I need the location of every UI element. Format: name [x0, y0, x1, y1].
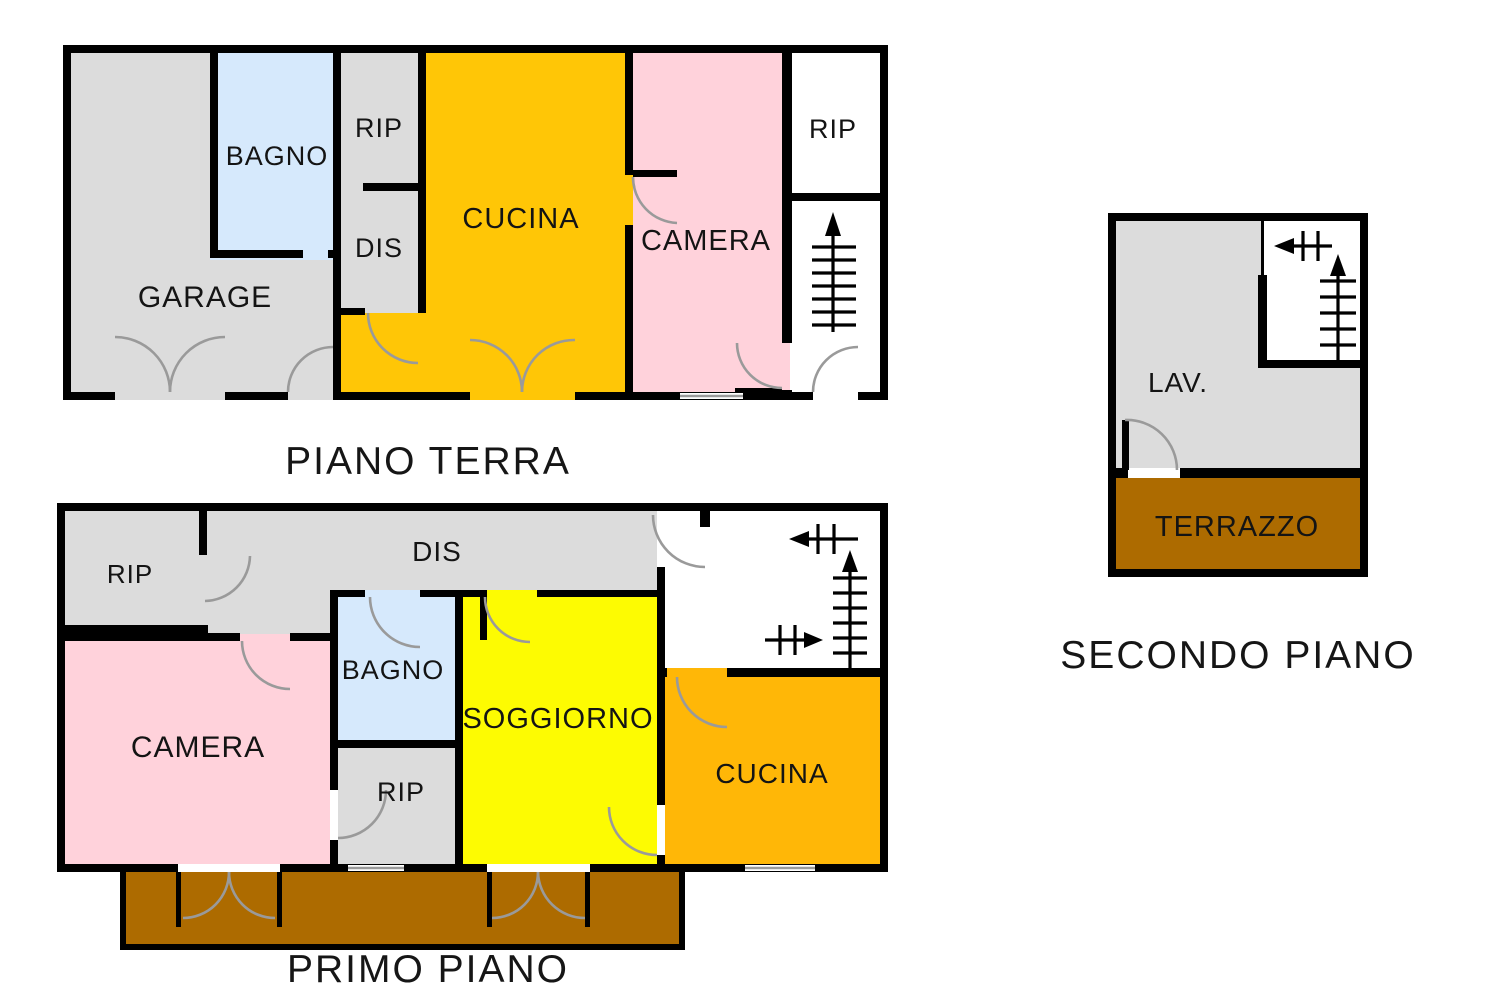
label-bagno-ground: BAGNO	[226, 141, 329, 171]
floor-title-second: SECONDO PIANO	[1060, 634, 1415, 677]
floor-title-ground: PIANO TERRA	[285, 440, 571, 483]
window-dis-first	[348, 865, 404, 871]
label-garage: GARAGE	[138, 281, 272, 314]
label-lav: LAV.	[1148, 367, 1208, 398]
label-terrazzo: TERRAZZO	[1155, 511, 1319, 543]
room-stairwell-second	[1261, 221, 1360, 362]
balcony-first	[120, 872, 685, 950]
label-rip2-ground: RIP	[809, 114, 857, 144]
window-cucina-first	[745, 865, 815, 871]
floor-plan-canvas: GARAGE BAGNO RIP DIS CUCINA CAMERA RIP P…	[0, 0, 1500, 999]
label-camera-ground: CAMERA	[641, 225, 771, 257]
floor-ground: GARAGE BAGNO RIP DIS CUCINA CAMERA RIP P…	[63, 45, 888, 483]
label-rip-ground: RIP	[355, 113, 403, 143]
room-stairwell-first	[657, 503, 880, 673]
floor-title-first: PRIMO PIANO	[287, 948, 569, 991]
window-camera-ground	[680, 393, 743, 399]
label-cucina-first: CUCINA	[715, 758, 828, 789]
label-dis-ground: DIS	[355, 233, 403, 263]
room-camera-ground	[633, 45, 790, 400]
floor-first: RIP DIS CAMERA BAGNO RIP SOGGIORNO CUCIN…	[57, 503, 888, 991]
label-dis-first: DIS	[412, 536, 462, 567]
label-soggiorno: SOGGIORNO	[462, 703, 653, 735]
floor-second: LAV. TERRAZZO SECONDO PIANO	[1060, 213, 1415, 677]
label-cucina-ground: CUCINA	[462, 203, 579, 235]
room-stairwell-ground	[790, 45, 884, 400]
label-bagno-first: BAGNO	[342, 655, 445, 685]
label-camera-first: CAMERA	[131, 731, 265, 764]
label-rip2-first: RIP	[377, 777, 425, 807]
label-rip-first: RIP	[107, 559, 153, 589]
room-rip-dis-column	[333, 45, 426, 313]
